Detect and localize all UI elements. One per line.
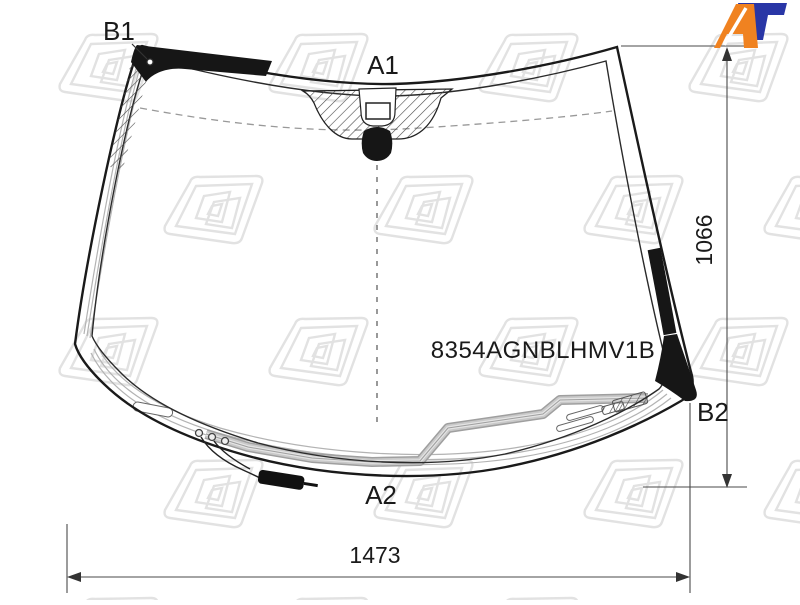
mirror-button xyxy=(362,127,393,161)
sensor-window xyxy=(366,103,390,119)
arrow-left-icon xyxy=(67,572,81,582)
watermark-logo-icon xyxy=(165,176,263,243)
mirror-sensor-assembly xyxy=(303,88,452,161)
arrow-right-icon xyxy=(676,572,690,582)
zone-label-a1: A1 xyxy=(367,50,399,80)
windshield-diagram-page: 1066 1473 B1 A1 A2 B2 8354AGNBLHMV1B A T xyxy=(0,0,800,600)
watermark-logo-icon xyxy=(690,34,788,101)
watermark-logo-icon xyxy=(165,460,263,527)
heater-plug-connector xyxy=(257,469,305,490)
watermark-logo-icon xyxy=(585,460,683,527)
width-dimension-value: 1473 xyxy=(349,542,400,568)
watermark-logo-icon xyxy=(270,318,368,385)
watermark-logo-icon xyxy=(60,318,158,385)
watermark-logo-icon xyxy=(375,176,473,243)
windshield-technical-drawing: 1066 1473 B1 A1 A2 B2 8354AGNBLHMV1B xyxy=(0,0,800,600)
height-dimension-value: 1066 xyxy=(691,214,717,265)
watermark-logo-icon xyxy=(765,460,800,527)
b1-leader-marker xyxy=(147,59,153,65)
watermark-logo-icon xyxy=(765,176,800,243)
watermark-logo-icon xyxy=(585,176,683,243)
zone-label-b2: B2 xyxy=(697,397,729,427)
zone-label-a2: A2 xyxy=(365,480,397,510)
zone-label-b1: B1 xyxy=(103,16,135,46)
arrow-down-icon xyxy=(722,474,732,488)
watermark-logo-icon xyxy=(690,318,788,385)
part-number: 8354AGNBLHMV1B xyxy=(431,337,655,364)
